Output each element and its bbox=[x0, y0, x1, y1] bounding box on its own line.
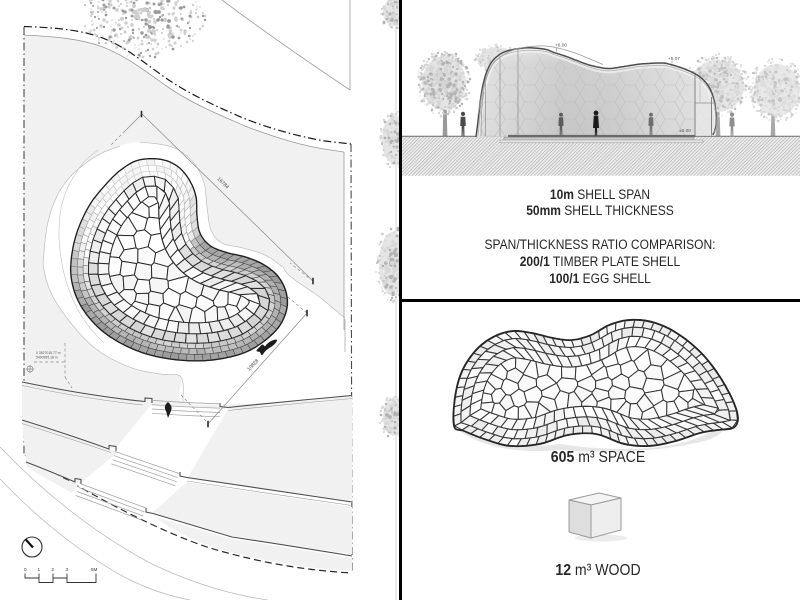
svg-text:±0.00: ±0.00 bbox=[679, 128, 691, 134]
svg-text:2: 2 bbox=[52, 567, 55, 572]
svg-text:0 3527018.77 m: 0 3527018.77 m bbox=[36, 351, 61, 355]
svg-text:+5.07: +5.07 bbox=[668, 56, 680, 62]
svg-text:5M: 5M bbox=[91, 567, 98, 572]
svg-text:1: 1 bbox=[38, 567, 41, 572]
svg-text:0: 0 bbox=[24, 567, 27, 572]
svg-text:5400955.18 m: 5400955.18 m bbox=[36, 356, 58, 360]
svg-text:+6.00: +6.00 bbox=[555, 43, 567, 49]
svg-text:3: 3 bbox=[66, 567, 69, 572]
